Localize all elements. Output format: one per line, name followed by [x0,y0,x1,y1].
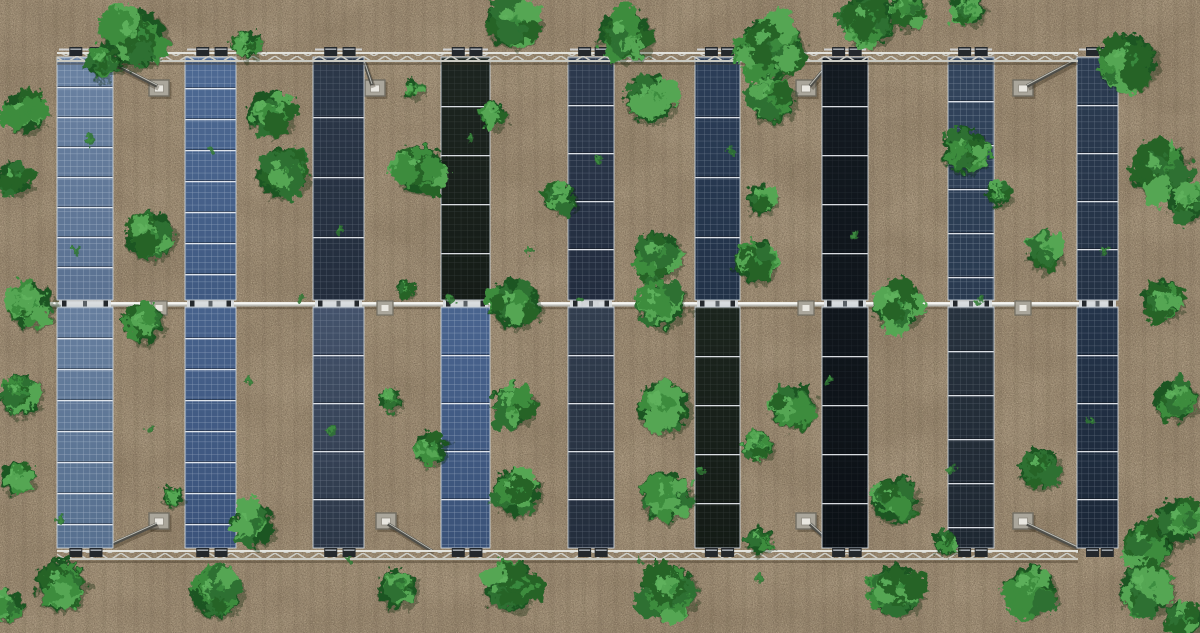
tube-clamp [605,300,610,307]
panel-module-gap [949,100,994,101]
bush-clump [503,403,516,416]
weed-tuft [297,297,304,304]
bush-highlight [896,0,903,7]
tube-clamp [716,301,720,307]
panel-cell-grid [58,58,112,299]
bush-highlight [21,390,27,396]
bush-highlight [773,94,780,101]
bush-clump [1121,62,1150,91]
panel-module-gap [186,399,236,400]
tube-clamp [859,300,864,307]
weed-clump [298,298,301,301]
panel-module-gap [186,523,236,524]
panel-clamp-highlight [216,550,227,551]
bush-highlight [627,28,635,36]
panel-clamp [975,548,988,557]
tube-clamp [355,300,360,307]
panel-module-line [186,462,236,463]
panel-clamp [705,548,718,557]
bush-clump [971,144,990,163]
bush-highlight [969,5,974,10]
tube-clamp [464,301,468,307]
tube-clamp [104,300,109,307]
bush-highlight [1162,163,1170,171]
panel-module-gap [949,232,994,233]
panel-module-line [58,177,113,178]
panel-module-gap [1078,450,1118,451]
panel-clamp-highlight [197,49,208,50]
panel-module-gap [949,438,994,439]
panel-module-line [1078,499,1118,500]
bush-clump [1030,590,1056,616]
bush-highlight [260,100,269,109]
panel-module-line [442,355,490,356]
bush-clump [7,114,23,130]
tube-clamp [953,300,958,307]
panel-module-line [314,403,364,404]
bush-highlight [1130,55,1138,63]
panel-module-line [569,403,614,404]
bush-clump [426,447,437,458]
panel-module-gap [186,87,236,88]
weed-clump [447,297,452,302]
weed-tuft [696,466,705,475]
truss-shadow [57,561,1078,564]
bush-clump [1169,161,1195,187]
solar-panel-row [313,57,364,300]
panel-clamp [69,548,82,557]
panel-module-gap [58,430,113,431]
bush-highlight [62,579,70,587]
panel-module-line [949,483,994,484]
bush-highlight [401,283,405,287]
panel-module-gap [823,154,868,155]
solar-panel-row [695,57,740,300]
panel-clamp-highlight [453,550,464,551]
bush-highlight [431,444,436,449]
bush-highlight [152,229,159,236]
weed-clump [327,427,332,432]
tube-clamp [83,301,87,307]
panel-clamp [849,47,862,56]
panel-module-gap [823,252,868,253]
tube-clamp [1096,301,1100,307]
bush-clump [213,598,228,613]
bush-highlight [1115,48,1126,59]
panel-clamp-highlight [579,550,590,551]
bush-clump [678,494,693,509]
bush-highlight [105,58,110,63]
panel-top-edge [1078,308,1118,309]
bush-highlight [244,513,252,521]
bush-clump [504,302,525,323]
bush-clump [753,44,776,67]
panel-clamp [1086,47,1099,56]
bush-clump [1133,594,1158,619]
solar-panel-row [568,307,614,548]
panel-module-line [314,237,364,238]
bush-highlight [897,583,905,591]
bush-highlight [422,164,429,171]
weed-tuft [446,296,455,305]
weed-clump [697,467,702,472]
panel-module-line [186,243,236,244]
tube-clamp-assembly [824,300,866,307]
solar-panel-row [822,57,868,300]
panel-clamp [89,548,102,557]
bush-highlight [1174,610,1181,617]
bush-highlight [1000,191,1004,195]
bush-highlight [167,491,171,495]
panel-module-gap [696,355,740,356]
weed-clump [148,428,151,431]
bush-highlight [758,441,762,445]
panel-module-line [58,147,113,148]
weed-tuft [147,427,154,434]
panel-clamp [1086,548,1099,557]
weed-clump [73,248,76,251]
panel-clamp-highlight [976,550,987,551]
bush-highlight [96,53,102,59]
panel-module-line [58,524,113,525]
panel-module-line [442,204,490,205]
bush-highlight [514,15,522,23]
panel-clamp [196,548,209,557]
bush-clump [130,41,153,64]
weed-clump [597,157,602,162]
weed-tuft [207,147,214,154]
bush-highlight [652,92,659,99]
tube-clamp-assembly [315,300,362,307]
panel-module-line [58,400,113,401]
tube-clamp-assembly [570,300,612,307]
bush-highlight [144,318,150,324]
bush-highlight [756,257,762,263]
bush-highlight [11,384,19,392]
panel-cell-grid [314,58,363,299]
panel-module-gap [1078,402,1118,403]
weed-tuft [1087,417,1094,424]
bush-highlight [9,601,13,605]
panel-module-line [823,503,868,504]
bush-highlight [1187,197,1193,203]
bush-highlight [1036,242,1043,249]
panel-clamp-highlight [470,550,481,551]
weed-clump [57,517,62,522]
tube-clamp [1082,300,1087,307]
crop-bush [746,184,779,217]
tube-clamp [843,301,847,307]
panel-module-line [442,403,490,404]
bush-highlight [651,394,661,404]
panel-module-gap [186,368,236,369]
panel-module-gap [314,450,364,451]
bush-highlight [498,573,508,583]
panel-clamp-highlight [706,550,717,551]
bush-highlight [1031,457,1039,465]
bush-highlight [746,251,754,259]
panel-module-line [58,493,113,494]
bush-clump [936,541,944,549]
panel-module-gap [442,354,490,355]
bush-highlight [668,490,676,498]
solar-panel-row [1077,307,1118,548]
weed-clump [638,558,641,561]
bush-clump [510,384,533,407]
bush-highlight [794,400,801,407]
panel-clamp [975,47,988,56]
panel-module-gap [442,402,490,403]
bush-highlight [752,533,757,538]
bush-highlight [385,394,389,398]
bush-highlight [1018,577,1028,587]
bush-highlight [270,159,280,169]
bush-clump [638,92,665,119]
tube-clamp [190,300,195,307]
weed-tuft [347,557,354,564]
panel-module-line [696,117,740,118]
panel-clamp [705,47,718,56]
weed-tuft [1101,246,1110,255]
weed-clump [1102,247,1107,252]
panel-module-gap [823,502,868,503]
bush-highlight [856,7,866,17]
panel-clamp [324,47,337,56]
panel-clamp-highlight [850,49,861,50]
bush-highlight [518,486,525,493]
bush-highlight [409,83,413,87]
bush-highlight [6,169,12,175]
panel-module-gap [1078,498,1118,499]
weed-tuft [56,516,65,525]
panel-module-line [569,249,614,250]
bush-highlight [1136,533,1145,542]
panel-clamp [721,47,734,56]
panel-module-line [696,405,740,406]
panel-module-line [823,454,868,455]
panel-module-gap [569,248,614,249]
bush-clump [644,408,669,433]
bush-highlight [391,397,394,400]
panel-module-gap [1078,200,1118,201]
panel-top-edge [823,308,868,309]
bush-highlight [422,439,428,445]
bush-clump [15,469,34,488]
panel-module-line [186,493,236,494]
panel-clamp [452,548,465,557]
bush-highlight [500,9,510,19]
panel-module-line [58,462,113,463]
panel-clamp [215,47,228,56]
anchor-pad-plate [1019,85,1028,92]
panel-module-gap [314,176,364,177]
bush-highlight [1134,576,1144,586]
bush-clump [1039,466,1060,487]
bush-highlight [1032,584,1040,592]
weed-clump [1088,418,1091,421]
panel-module-line [569,355,614,356]
panel-module-line [58,431,113,432]
weed-clump [527,247,532,252]
panel-module-gap [569,402,614,403]
bush-highlight [494,112,498,116]
weed-tuft [756,576,765,585]
solar-panel-row [948,307,994,548]
panel-module-line [58,369,113,370]
bush-highlight [10,470,16,476]
tube-clamp [985,300,990,307]
panel-cell-grid [1078,58,1117,299]
panel-clamp-highlight [1102,550,1113,551]
panel-module-gap [442,252,490,253]
solar-panel-row [568,57,614,300]
panel-module-line [949,395,994,396]
panel-module-line [823,106,868,107]
panel-cell-grid [569,58,613,299]
panel-module-gap [823,404,868,405]
panel-module-gap [58,146,113,147]
weed-clump [978,298,981,301]
bush-highlight [18,474,23,479]
panel-module-line [823,405,868,406]
bush-clump [636,28,655,47]
solar-panel-row [948,57,994,300]
panel-module-gap [186,492,236,493]
bush-highlight [503,394,511,402]
bush-highlight [512,580,520,588]
weed-clump [247,377,252,382]
bush-clump [643,479,670,506]
panel-module-gap [186,337,236,338]
panel-module-gap [58,266,113,267]
weed-clump [348,558,351,561]
weed-tuft [637,557,644,564]
solar-panel-row [313,307,364,548]
truss-top-chord [57,550,1078,552]
panel-module-gap [58,337,113,338]
bush-highlight [654,483,664,493]
panel-module-line [442,499,490,500]
bush-highlight [906,5,912,11]
panel-clamp-highlight [959,550,970,551]
bush-highlight [1166,389,1174,397]
panel-module-line [186,119,236,120]
panel-module-line [314,117,364,118]
panel-module-gap [949,482,994,483]
panel-cell-grid [823,308,867,547]
panel-module-line [58,338,113,339]
bush-highlight [1177,192,1184,199]
bush-highlight [204,579,214,589]
bush-highlight [663,297,670,304]
panel-clamp [452,47,465,56]
bush-highlight [755,32,767,44]
panel-top-edge [949,308,994,309]
bush-highlight [762,195,766,199]
panel-clamp-highlight [453,49,464,50]
panel-clamp-highlight [70,550,81,551]
panel-module-gap [696,116,740,117]
panel-module-gap [696,502,740,503]
panel-module-gap [58,399,113,400]
panel-module-gap [186,430,236,431]
weed-tuft [977,297,984,304]
tube-clamp [209,301,213,307]
panel-module-line [949,351,994,352]
panel-module-gap [949,276,994,277]
panel-module-gap [696,404,740,405]
bush-highlight [1147,156,1158,167]
panel-module-line [949,277,994,278]
tube-clamp [969,301,973,307]
bush-clump [891,497,912,518]
bush-highlight [517,297,524,304]
bush-highlight [1041,463,1047,469]
tube-clamp [62,300,67,307]
panel-cell-grid [186,58,235,299]
panel-module-line [58,207,113,208]
panel-module-line [569,153,614,154]
panel-module-gap [569,498,614,499]
panel-module-line [186,431,236,432]
panel-module-gap [58,523,113,524]
panel-clamp-highlight [197,550,208,551]
bush-clump [275,173,291,189]
panel-clamp-highlight [722,49,733,50]
panel-module-line [1078,153,1118,154]
panel-clamp-highlight [325,550,336,551]
tube-clamp [337,301,341,307]
tube-clamp [227,300,232,307]
panel-clamp [721,548,734,557]
panel-module-line [314,451,364,452]
weed-tuft [467,137,474,144]
bush-highlight [414,86,417,89]
panel-module-gap [314,116,364,117]
panel-module-line [949,527,994,528]
panel-module-line [442,253,490,254]
panel-module-gap [442,203,490,204]
truss-bottom-chord [57,60,1078,62]
weed-clump [578,298,581,301]
bush-highlight [939,536,944,541]
bush-highlight [218,586,226,594]
tube-mount-plate [803,305,810,311]
panel-clamp [215,548,228,557]
panel-clamp [958,47,971,56]
panel-top-edge [442,308,490,309]
panel-module-line [58,117,113,118]
tube-mount-plate [382,305,389,311]
panel-module-gap [58,368,113,369]
bush-highlight [886,293,895,302]
panel-module-gap [696,176,740,177]
bush-highlight [759,537,763,541]
panel-module-gap [569,354,614,355]
panel-clamp-highlight [722,550,733,551]
panel-cell-grid [314,308,363,547]
solar-panel-row [1077,57,1118,300]
panel-top-edge [696,308,740,309]
panel-clamp [324,548,337,557]
tube-clamp [1109,300,1114,307]
panel-module-gap [58,461,113,462]
truss-top-chord [57,52,1078,54]
bush-clump [749,447,759,457]
bush-highlight [1148,582,1156,590]
panel-module-line [696,454,740,455]
bush-highlight [754,191,760,197]
